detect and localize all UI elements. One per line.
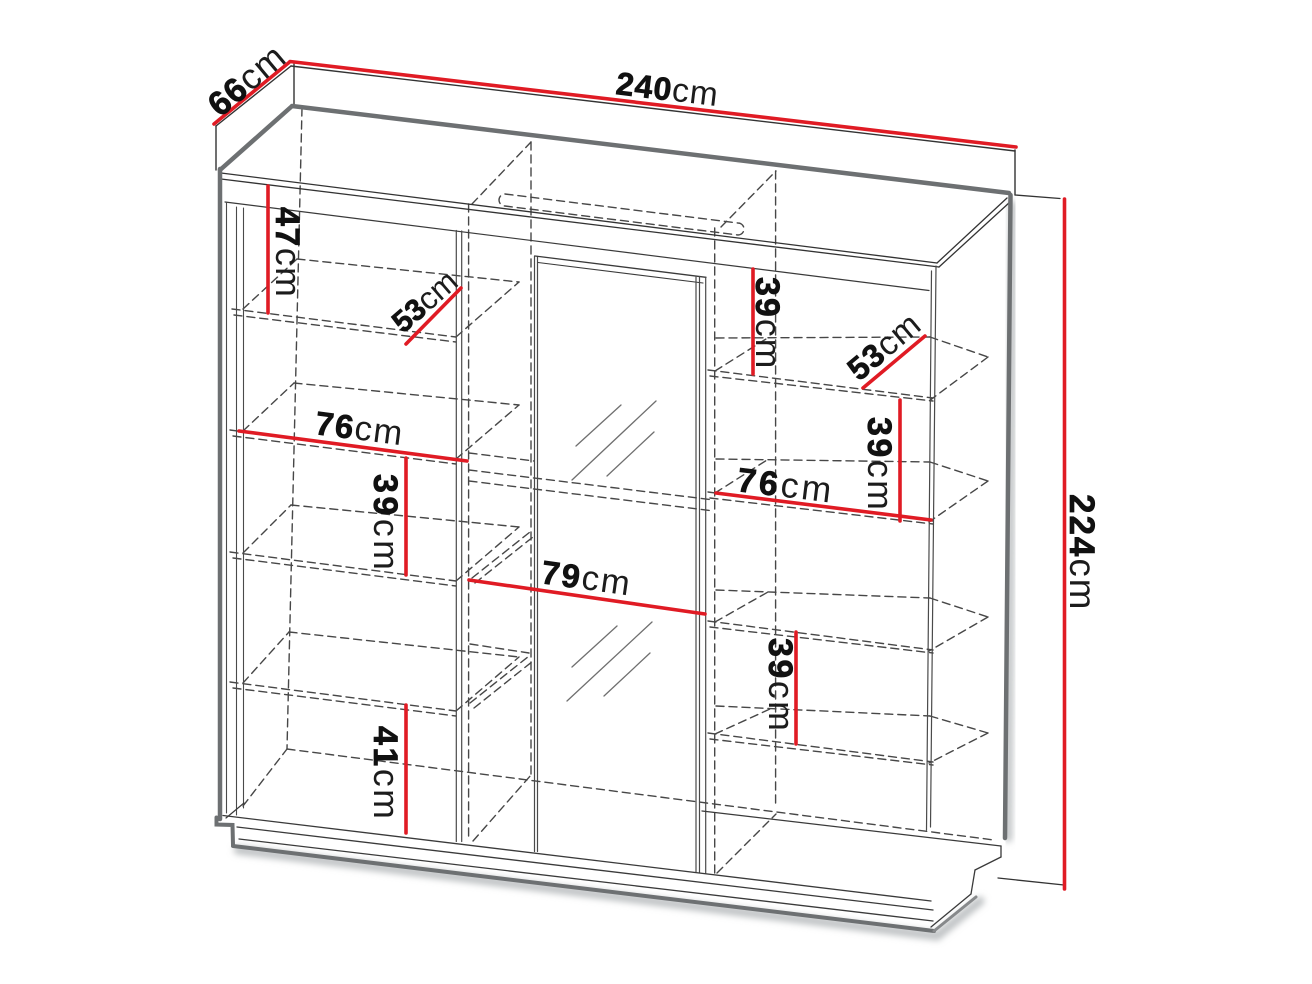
- svg-text:47cm: 47cm: [268, 207, 308, 298]
- svg-text:39cm: 39cm: [748, 277, 788, 370]
- svg-text:39cm: 39cm: [761, 638, 801, 733]
- svg-text:41cm: 41cm: [366, 726, 406, 821]
- svg-text:224cm: 224cm: [1062, 494, 1103, 611]
- svg-text:39cm: 39cm: [366, 474, 406, 573]
- svg-text:39cm: 39cm: [860, 417, 900, 512]
